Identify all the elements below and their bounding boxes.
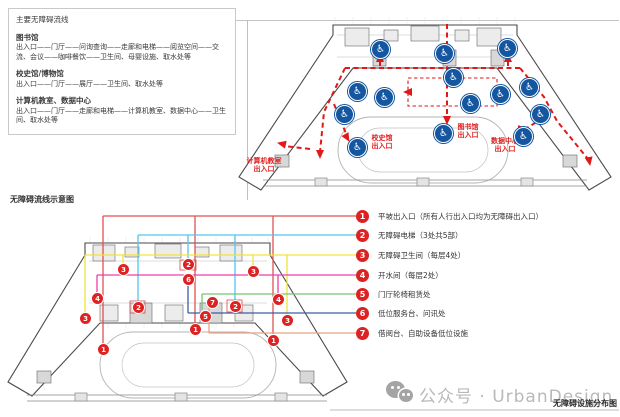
wheelchair-icon: ♿ — [434, 124, 453, 143]
flow-marker: 6 — [182, 273, 195, 286]
flow-marker: 2 — [182, 258, 195, 271]
flow-marker: 2 — [132, 301, 145, 314]
wheelchair-icon: ♿ — [520, 78, 539, 97]
wheelchair-icon: ♿ — [348, 82, 367, 101]
flow-description-panel: 主要无障碍流线 图书馆出入口——门厅——问询查询——走廊和电梯——阅览空间——交… — [8, 8, 236, 135]
wheelchair-icon: ♿ — [531, 105, 550, 124]
legend-item: 5门厅轮椅租赁处 — [356, 288, 431, 301]
legend-number: 3 — [356, 249, 369, 262]
page: 主要无障碍流线 图书馆出入口——门厅——问询查询——走廊和电梯——阅览空间——交… — [0, 0, 620, 417]
flow-section-body: 出入口——门厅——问询查询——走廊和电梯——阅览空间——交流、会议——咖啡餐饮—… — [16, 43, 228, 62]
flow-section-heading: 校史馆/博物馆 — [16, 69, 228, 79]
flow-section-body: 出入口——门厅——展厅——卫生间、取水处等 — [16, 80, 228, 90]
entrance-label: 校史馆出入口 — [364, 134, 400, 150]
wheelchair-icon: ♿ — [461, 94, 480, 113]
flow-section: 计算机教室、数据中心出入口——门厅——走廊和电梯——计算机教室、数据中心——卫生… — [16, 96, 228, 126]
flow-marker: 7 — [206, 296, 219, 309]
legend-label: 开水间（每层2处） — [378, 270, 443, 281]
legend-number: 4 — [356, 269, 369, 282]
legend-label: 门厅轮椅租赁处 — [378, 289, 431, 300]
flow-marker: 4 — [91, 292, 104, 305]
legend-label: 无障碍电梯（3处共5部） — [378, 230, 463, 241]
flow-section: 校史馆/博物馆出入口——门厅——展厅——卫生间、取水处等 — [16, 69, 228, 89]
flow-section: 图书馆出入口——门厅——问询查询——走廊和电梯——阅览空间——交流、会议——咖啡… — [16, 33, 228, 63]
wheelchair-icon: ♿ — [348, 138, 367, 157]
wheelchair-icon: ♿ — [435, 44, 454, 63]
legend-number: 6 — [356, 307, 369, 320]
wheelchair-icon: ♿ — [498, 39, 517, 58]
sheet-caption: 无障碍设施分布图 — [553, 398, 617, 409]
legend-item: 1平坡出入口（所有人行出入口均为无障碍出入口） — [356, 210, 543, 223]
entrance-label: 图书馆出入口 — [450, 123, 486, 139]
flow-section-heading: 计算机教室、数据中心 — [16, 96, 228, 106]
flow-marker: 1 — [267, 334, 280, 347]
flow-sections: 图书馆出入口——门厅——问询查询——走廊和电梯——阅览空间——交流、会议——咖啡… — [16, 33, 228, 126]
flow-marker: 3 — [79, 312, 92, 325]
flow-marker: 2 — [229, 300, 242, 313]
flow-marker: 5 — [199, 310, 212, 323]
flow-marker: 4 — [272, 293, 285, 306]
wechat-icon — [386, 381, 416, 407]
schematic-plan-label: 无障碍流线示意图 — [10, 194, 74, 205]
legend-label: 无障碍卫生间（每层4处） — [378, 250, 465, 261]
flow-marker: 3 — [281, 314, 294, 327]
wheelchair-icon: ♿ — [444, 68, 463, 87]
flow-section-heading: 图书馆 — [16, 33, 228, 43]
flow-marker: 3 — [117, 263, 130, 276]
legend-item: 2无障碍电梯（3处共5部） — [356, 229, 463, 242]
wheelchair-icon: ♿ — [514, 127, 533, 146]
wheelchair-icon: ♿ — [335, 105, 354, 124]
wheelchair-icon: ♿ — [491, 85, 510, 104]
legend-number: 7 — [356, 327, 369, 340]
panel-title: 主要无障碍流线 — [16, 15, 228, 25]
flow-marker: 3 — [247, 265, 260, 278]
flow-marker: 1 — [189, 323, 202, 336]
wheelchair-icon: ♿ — [371, 40, 390, 59]
legend-item: 6低位服务台、问讯处 — [356, 307, 446, 320]
wheelchair-icon: ♿ — [375, 88, 394, 107]
flow-marker: 1 — [97, 343, 110, 356]
entrance-label: 计算机教室出入口 — [238, 157, 290, 173]
legend-label: 低位服务台、问讯处 — [378, 308, 446, 319]
legend-label: 借阅台、自助设备低位设施 — [378, 328, 468, 339]
legend-number: 2 — [356, 229, 369, 242]
legend-item: 4开水间（每层2处） — [356, 269, 443, 282]
legend-item: 3无障碍卫生间（每层4处） — [356, 249, 465, 262]
legend-number: 1 — [356, 210, 369, 223]
legend-number: 5 — [356, 288, 369, 301]
legend-item: 7借阅台、自助设备低位设施 — [356, 327, 468, 340]
flow-section-body: 出入口——门厅——走廊和电梯——计算机教室、数据中心——卫生间、取水处等 — [16, 107, 228, 126]
legend-label: 平坡出入口（所有人行出入口均为无障碍出入口） — [378, 211, 543, 222]
